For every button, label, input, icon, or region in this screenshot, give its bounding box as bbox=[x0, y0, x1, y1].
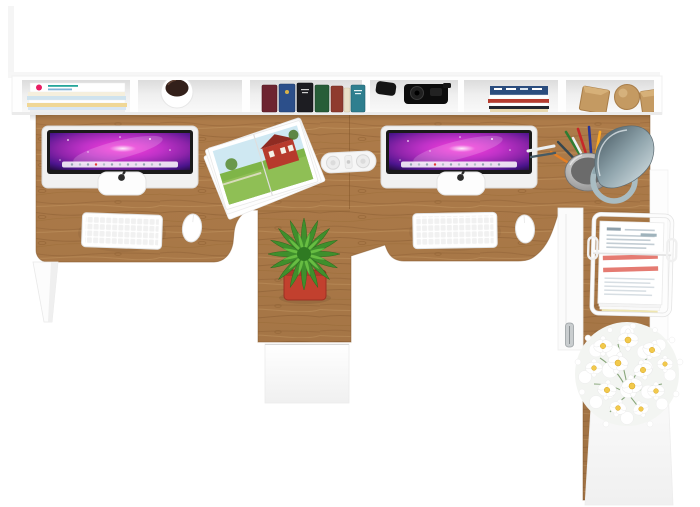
coffee-mug bbox=[161, 76, 193, 108]
power-strip bbox=[321, 151, 377, 174]
book-spine bbox=[344, 88, 350, 112]
product-render-scene bbox=[0, 0, 700, 507]
pedestal-drawer-front bbox=[265, 344, 349, 403]
book-spine bbox=[297, 83, 313, 112]
book-spine bbox=[351, 85, 365, 112]
magazine-stack-2 bbox=[488, 86, 549, 112]
shelf-under-shadow bbox=[30, 114, 650, 121]
shelf-top-face bbox=[8, 6, 660, 78]
imac-left bbox=[42, 126, 198, 195]
keyboard-left bbox=[81, 213, 162, 250]
magazine-stack bbox=[27, 83, 127, 112]
book-spine bbox=[262, 85, 277, 112]
imac-right bbox=[381, 126, 537, 195]
shelf-bottom-lip bbox=[12, 112, 662, 115]
keyboard-right bbox=[413, 212, 498, 248]
book-spine bbox=[279, 84, 295, 112]
book-spine bbox=[331, 86, 343, 112]
wall-shelf bbox=[8, 6, 666, 121]
book-spine bbox=[315, 85, 329, 112]
mid-cabinet bbox=[558, 208, 583, 350]
plant-center bbox=[297, 247, 311, 261]
